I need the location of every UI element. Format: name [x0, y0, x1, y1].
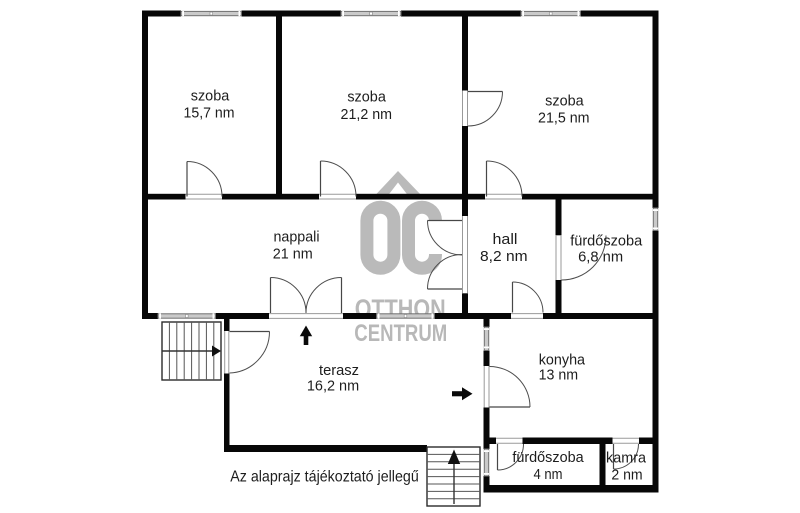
svg-text:6,8 nm: 6,8 nm	[578, 248, 623, 265]
svg-text:21,5 nm: 21,5 nm	[538, 110, 590, 127]
svg-text:fürdőszoba: fürdőszoba	[512, 449, 584, 466]
svg-text:21,2 nm: 21,2 nm	[341, 106, 393, 123]
svg-text:8,2 nm: 8,2 nm	[480, 248, 528, 265]
svg-text:CENTRUM: CENTRUM	[354, 320, 447, 347]
svg-text:15,7 nm: 15,7 nm	[184, 105, 235, 122]
svg-text:szoba: szoba	[191, 87, 230, 104]
svg-text:kamra: kamra	[606, 450, 647, 467]
svg-text:2 nm: 2 nm	[611, 466, 642, 483]
svg-text:nappali: nappali	[274, 228, 320, 245]
svg-text:Az alaprajz tájékoztató jelleg: Az alaprajz tájékoztató jellegű	[230, 468, 419, 485]
svg-text:szoba: szoba	[347, 88, 386, 105]
svg-text:szoba: szoba	[545, 93, 584, 110]
svg-text:13 nm: 13 nm	[539, 367, 579, 384]
svg-text:21 nm: 21 nm	[273, 245, 313, 262]
svg-text:terasz: terasz	[319, 362, 359, 379]
svg-text:fürdőszoba: fürdőszoba	[570, 233, 643, 250]
svg-text:4 nm: 4 nm	[534, 466, 563, 483]
svg-text:hall: hall	[493, 231, 518, 248]
svg-text:16,2 nm: 16,2 nm	[307, 378, 359, 395]
